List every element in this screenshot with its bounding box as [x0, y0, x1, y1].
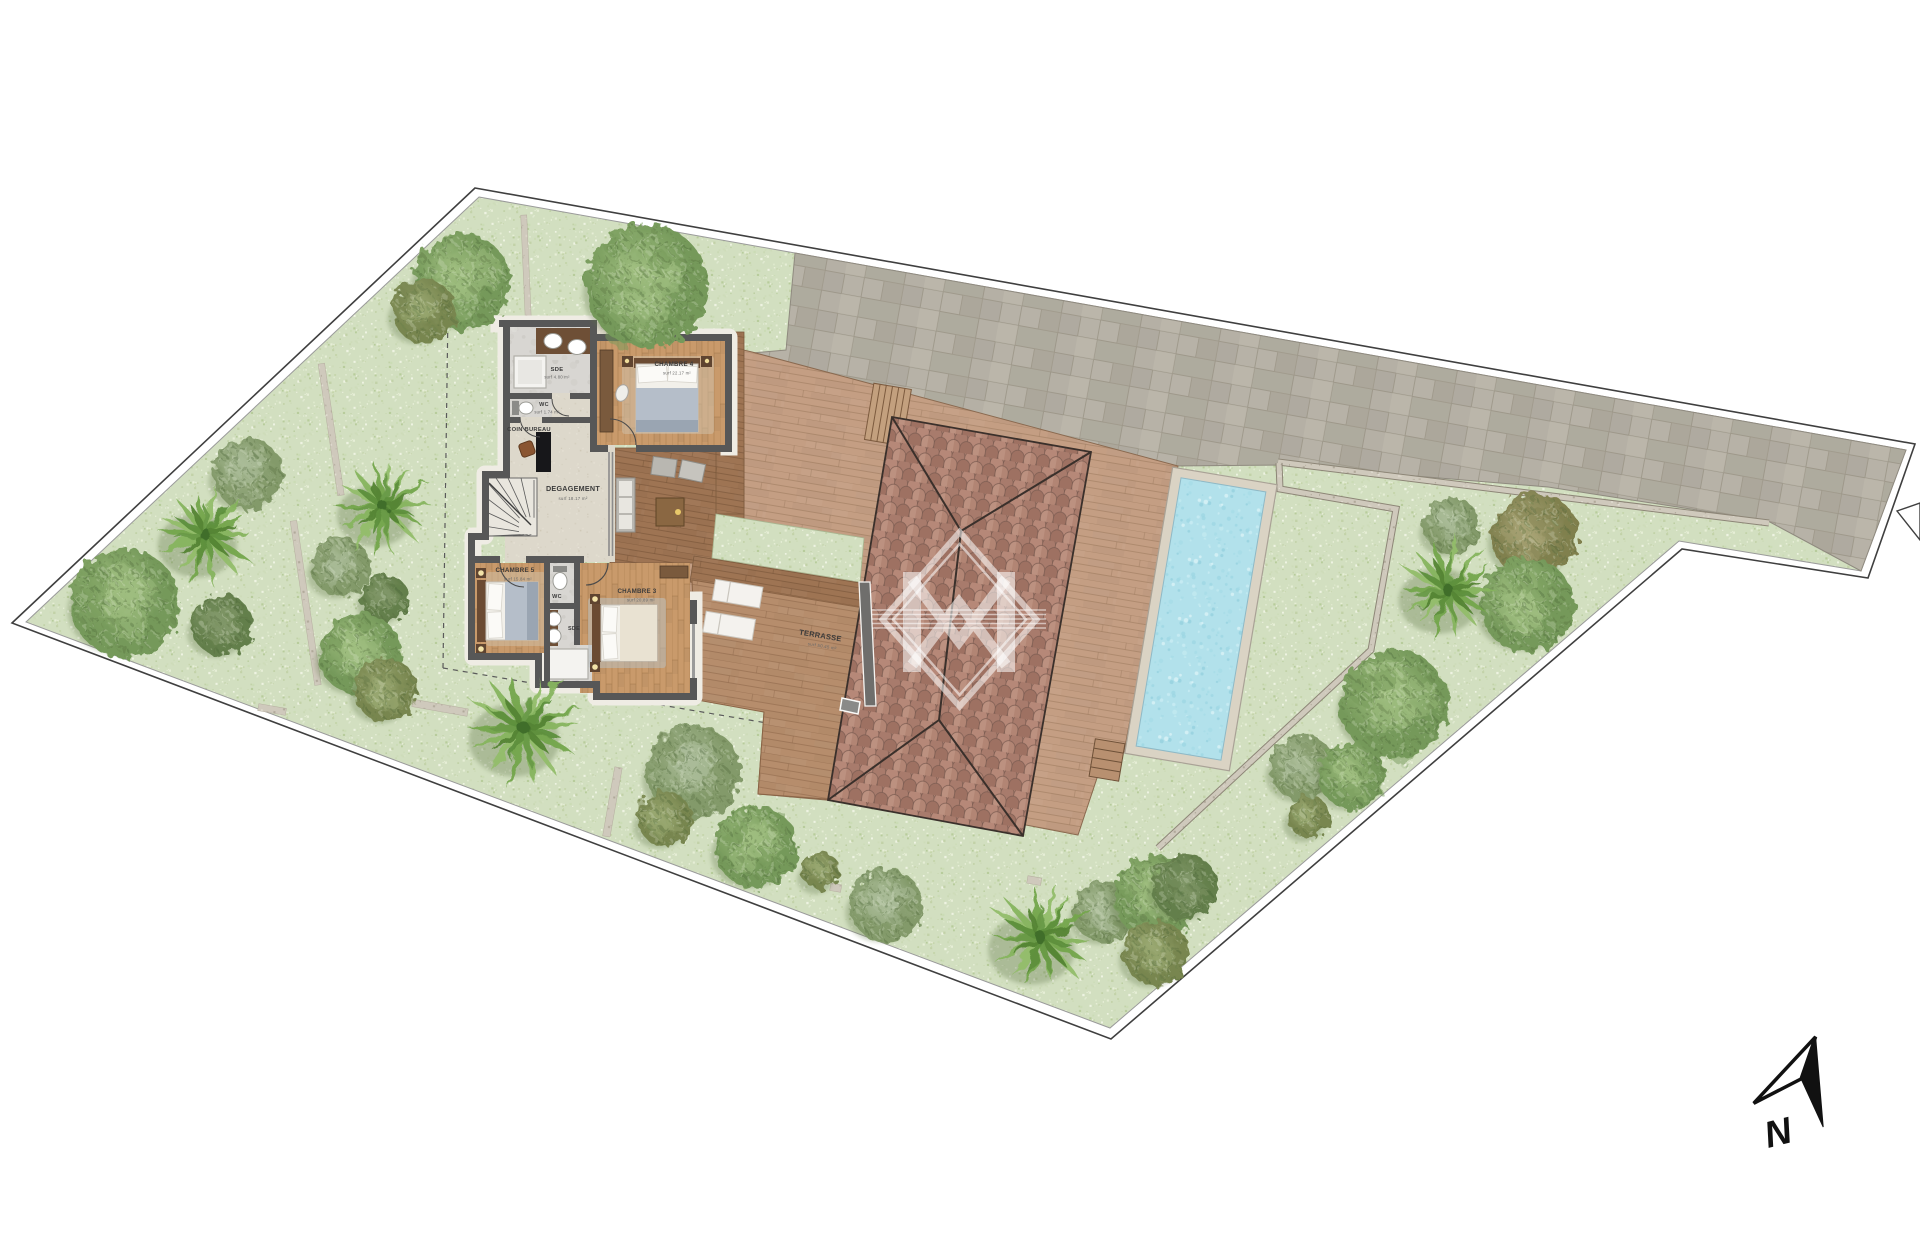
svg-text:surf 1.74 m²: surf 1.74 m²	[534, 410, 560, 415]
svg-text:COIN BUREAU: COIN BUREAU	[507, 427, 551, 433]
svg-text:SDE: SDE	[568, 626, 580, 632]
svg-text:surf 22.17 m²: surf 22.17 m²	[663, 371, 691, 376]
svg-text:surf 4.80 m²: surf 4.80 m²	[544, 375, 570, 380]
svg-text:CHAMBRE 4: CHAMBRE 4	[654, 361, 693, 368]
svg-text:WC: WC	[539, 402, 549, 408]
svg-text:DEGAGEMENT: DEGAGEMENT	[546, 484, 600, 493]
svg-text:WC: WC	[552, 594, 562, 600]
svg-text:surf 15.84 m²: surf 15.84 m²	[504, 577, 532, 582]
svg-text:CHAMBRE 3: CHAMBRE 3	[617, 588, 656, 595]
svg-text:surf 18.17 m²: surf 18.17 m²	[558, 496, 587, 501]
svg-text:SDE: SDE	[551, 367, 564, 373]
svg-text:CHAMBRE 5: CHAMBRE 5	[495, 567, 534, 574]
svg-text:surf 20.89 m²: surf 20.89 m²	[627, 598, 655, 603]
